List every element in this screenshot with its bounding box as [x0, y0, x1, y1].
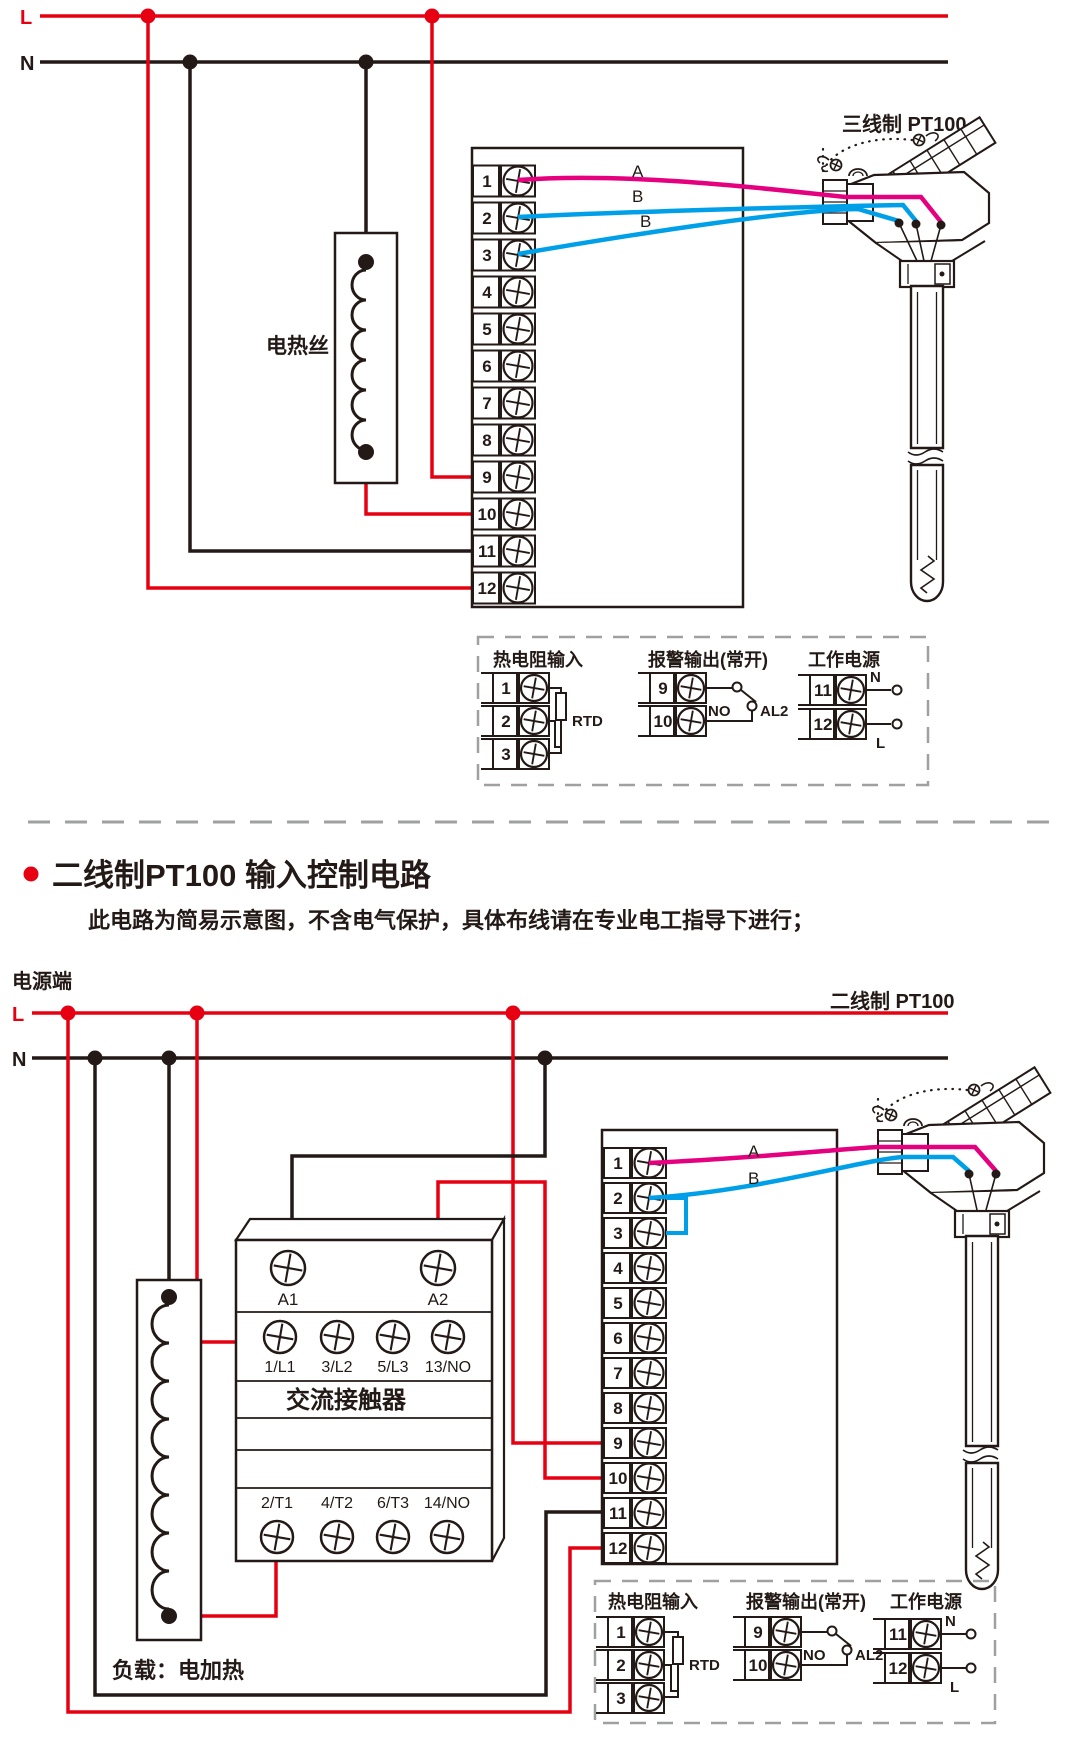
junction-dot: [506, 1006, 521, 1021]
rtd-resistor: [673, 1637, 683, 1664]
contactor-name: 交流接触器: [286, 1386, 407, 1414]
junction-dot: [162, 1051, 177, 1066]
contactor-2t1-label: 2/T1: [261, 1495, 293, 1512]
terminal-number: 12: [478, 579, 497, 598]
switch-blade: [836, 1634, 851, 1646]
alarm-title: 报警输出(常开): [648, 649, 768, 670]
terminal-number: 2: [616, 1656, 625, 1675]
switch-blade: [741, 690, 756, 702]
terminal-number: 12: [609, 1539, 628, 1558]
contactor-5l3-label: 5/L3: [377, 1359, 408, 1376]
terminal-number: 9: [658, 679, 667, 698]
terminal-number: 3: [616, 1689, 625, 1708]
terminal-number: 2: [501, 712, 510, 731]
wire-a-label: A: [748, 1142, 760, 1161]
supply-wiring: N L: [941, 1613, 976, 1696]
neutral-label: N: [12, 1049, 26, 1071]
terminal-number: 10: [609, 1469, 628, 1488]
junction-dot: [183, 55, 198, 70]
al2-label: AL2: [760, 703, 788, 720]
terminal-number: 11: [814, 681, 832, 700]
terminal-number: 8: [482, 431, 491, 450]
terminal-number: 4: [482, 283, 492, 302]
terminal-number: 8: [613, 1399, 622, 1418]
rtd-label: RTD: [689, 1657, 720, 1674]
terminal-number: 5: [613, 1294, 622, 1313]
junction-dot: [141, 9, 156, 24]
pt100-probe-bottom: [963, 1236, 998, 1589]
wire-b2-label: B: [640, 212, 651, 231]
supply-title: 工作电源: [890, 1591, 962, 1612]
terminal-number: 9: [482, 468, 491, 487]
power-lines-top: L N: [20, 7, 948, 75]
junction-dot: [61, 1006, 76, 1021]
no-label: NO: [803, 1647, 826, 1664]
contactor-1l1-label: 1/L1: [264, 1359, 295, 1376]
junction-dot: [425, 9, 440, 24]
terminal-number: 9: [753, 1623, 762, 1642]
terminal-number: 2: [613, 1189, 622, 1208]
terminal-number: 3: [501, 745, 510, 764]
neutral-label: N: [20, 53, 34, 75]
terminal-number: 1: [482, 172, 491, 191]
terminal-number: 10: [654, 712, 673, 731]
terminal-number: 12: [889, 1659, 908, 1678]
terminal-block-top: 123456789101112: [473, 166, 535, 604]
wires-top: [148, 16, 518, 588]
junction-dot: [538, 1051, 553, 1066]
rtd-title: 热电阻输入: [608, 1591, 698, 1612]
alarm-title: 报警输出(常开): [746, 1591, 866, 1612]
bullet-icon: [24, 867, 39, 882]
sensor-label-top: 三线制 PT100: [842, 112, 966, 136]
heater: 电热丝: [266, 233, 397, 483]
contactor-4t2-label: 4/T2: [321, 1495, 353, 1512]
live-label: L: [20, 7, 32, 29]
supply-n-label: N: [870, 669, 881, 686]
terminal-number: 4: [613, 1259, 623, 1278]
live-to-terminal-12: [148, 16, 518, 588]
contactor: A1 A2 1/L1 3/L2 5/L3 13/NO 交流接触器 2/T1 4/…: [236, 1219, 504, 1561]
power-terminal-label: 电源端: [12, 970, 72, 993]
terminal-number: 1: [616, 1623, 625, 1642]
terminal-number: 10: [478, 505, 497, 524]
supply-n-label: N: [945, 1613, 956, 1630]
terminal-number: 3: [613, 1224, 622, 1243]
terminal-number: 5: [482, 320, 491, 339]
contactor-6t3-label: 6/T3: [377, 1495, 409, 1512]
heater-label: 电热丝: [266, 334, 329, 358]
terminal-number: 1: [613, 1154, 622, 1173]
two-wire-circuit: 电源端 L N: [12, 970, 1057, 1723]
terminal-number: 11: [889, 1625, 907, 1644]
terminal-number: 6: [613, 1329, 622, 1348]
alarm-switch: NO AL2: [706, 683, 788, 722]
load-label: 负载：电加热: [112, 1658, 244, 1683]
detail-panel-bottom: 热电阻输入 报警输出(常开) 工作电源 1239101112 RTD NO AL…: [595, 1581, 995, 1723]
supply-l-label: L: [950, 1679, 959, 1696]
rtd-title: 热电阻输入: [493, 649, 583, 670]
wire-b1-label: B: [632, 187, 643, 206]
al2-label: AL2: [855, 1647, 883, 1664]
contactor-3l2-label: 3/L2: [321, 1359, 352, 1376]
wiring-diagram-page: L N 电热丝 123456789101112 三线制 P: [0, 0, 1080, 1742]
pt100-probe-top: [908, 286, 943, 601]
contactor-a1-label: A1: [278, 1290, 299, 1309]
terminal-number: 12: [814, 715, 833, 734]
supply-title: 工作电源: [808, 649, 880, 670]
rtd-label: RTD: [572, 713, 603, 730]
contactor-a2-label: A2: [428, 1290, 449, 1309]
wiring-diagram: L N 电热丝 123456789101112 三线制 P: [0, 0, 1080, 1742]
terminal-number: 6: [482, 357, 491, 376]
section-note: 此电路为简易示意图，不含电气保护，具体布线请在专业电工指导下进行；: [88, 908, 814, 933]
terminal-number: 11: [478, 542, 496, 561]
no-label: NO: [708, 703, 731, 720]
supply-wiring: N L: [866, 669, 902, 752]
supply-l-label: L: [876, 735, 885, 752]
detail-panel-top: 热电阻输入 报警输出(常开) 工作电源 1239101112 RTD NO AL…: [478, 637, 928, 785]
terminal-number: 2: [482, 209, 491, 228]
live-label: L: [12, 1004, 24, 1026]
section-title: 二线制PT100 输入控制电路: [52, 858, 432, 893]
terminal-number: 9: [613, 1434, 622, 1453]
contactor-14no-label: 14/NO: [424, 1495, 470, 1512]
junction-dot: [190, 1006, 205, 1021]
terminal-number: 11: [609, 1504, 627, 1523]
terminal-number: 1: [501, 679, 510, 698]
junction-dot: [359, 55, 374, 70]
alarm-switch: NO AL2: [801, 1627, 883, 1666]
wire-b-label: B: [748, 1169, 759, 1188]
terminal-number: 10: [749, 1656, 768, 1675]
wire-a-label: A: [632, 162, 644, 181]
terminal-block-bottom: 123456789101112: [604, 1148, 666, 1563]
jumper-2-3: [666, 1198, 686, 1233]
terminal-number: 7: [482, 394, 491, 413]
rtd-resistor: [556, 693, 566, 720]
junction-dot: [88, 1051, 103, 1066]
terminal-number: 7: [613, 1364, 622, 1383]
three-wire-circuit: L N 电热丝 123456789101112 三线制 P: [20, 7, 1002, 785]
contactor-13no-label: 13/NO: [425, 1359, 471, 1376]
sensor-label-bottom: 二线制 PT100: [830, 989, 954, 1013]
terminal-number: 3: [482, 246, 491, 265]
